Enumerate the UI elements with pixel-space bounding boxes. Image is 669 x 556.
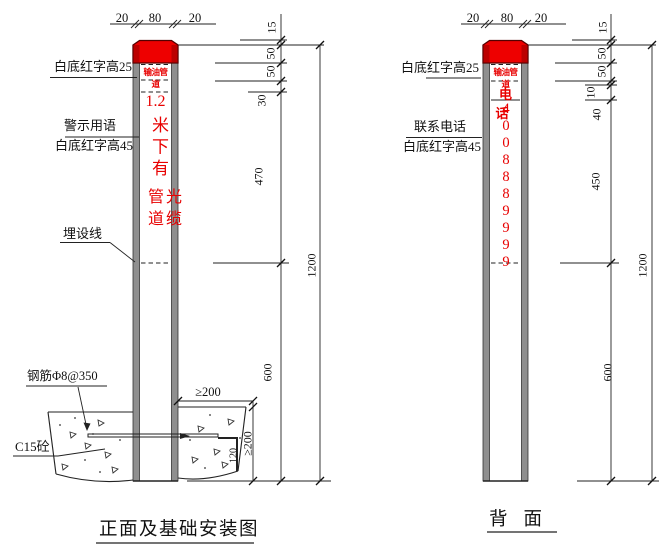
back-dim-40: 40: [590, 93, 605, 137]
front-warning-line1: 1.2: [140, 93, 171, 111]
drawing-canvas: [0, 0, 669, 556]
front-view-title: 正面及基础安装图: [99, 515, 259, 541]
front-dim-470: 470: [252, 155, 267, 199]
back-dim-450: 450: [589, 160, 604, 204]
post-cap: [133, 41, 178, 64]
back-contact-note: 白底红字高45: [403, 140, 485, 154]
front-top-dim-20-left: 20: [112, 11, 132, 26]
front-pipeline-band-text: 输油管道: [140, 66, 171, 90]
back-cap-note: 白底红字高25: [397, 61, 479, 75]
back-phone-number: 4008889999: [497, 101, 514, 271]
front-dim-120: 120: [229, 434, 240, 478]
front-top-dim-80: 80: [145, 11, 165, 26]
front-concrete-label: C15砼: [15, 440, 50, 454]
front-leaders: [13, 78, 139, 457]
foundation: [48, 407, 246, 482]
back-dim-1200: 1200: [636, 244, 651, 288]
back-dim-600: 600: [601, 351, 616, 395]
front-rebar-label: 钢筋Φ8@350: [27, 370, 98, 384]
front-dim-min200-v: ≥200: [241, 422, 256, 466]
front-dim-1200: 1200: [305, 244, 320, 288]
front-cap-note: 白底红字高25: [50, 60, 132, 74]
back-top-dim-80: 80: [497, 11, 517, 26]
pipeline-marker-drawing: 20 80 20 白底红字高25 警示用语 白底红字高45 埋设线 钢筋Φ8@3…: [0, 0, 669, 556]
front-warning-col-right: 光缆: [159, 188, 183, 232]
front-dim-600: 600: [261, 351, 276, 395]
back-top-dim-20-right: 20: [531, 11, 551, 26]
front-dim-30: 30: [255, 79, 270, 123]
post-cap-back: [483, 41, 528, 64]
front-top-dim-20-right: 20: [185, 11, 205, 26]
back-contact-label: 联系电话: [407, 120, 473, 134]
back-view-title: 背面: [489, 505, 558, 531]
front-warning-note-2: 白底红字高45: [55, 139, 137, 153]
front-dim-min200-h: ≥200: [183, 386, 233, 400]
front-warning-column: 米下有: [146, 116, 171, 181]
front-burial-line-label: 埋设线: [63, 227, 102, 241]
back-top-dim-20-left: 20: [463, 11, 483, 26]
front-warning-note-1: 警示用语: [64, 119, 114, 133]
